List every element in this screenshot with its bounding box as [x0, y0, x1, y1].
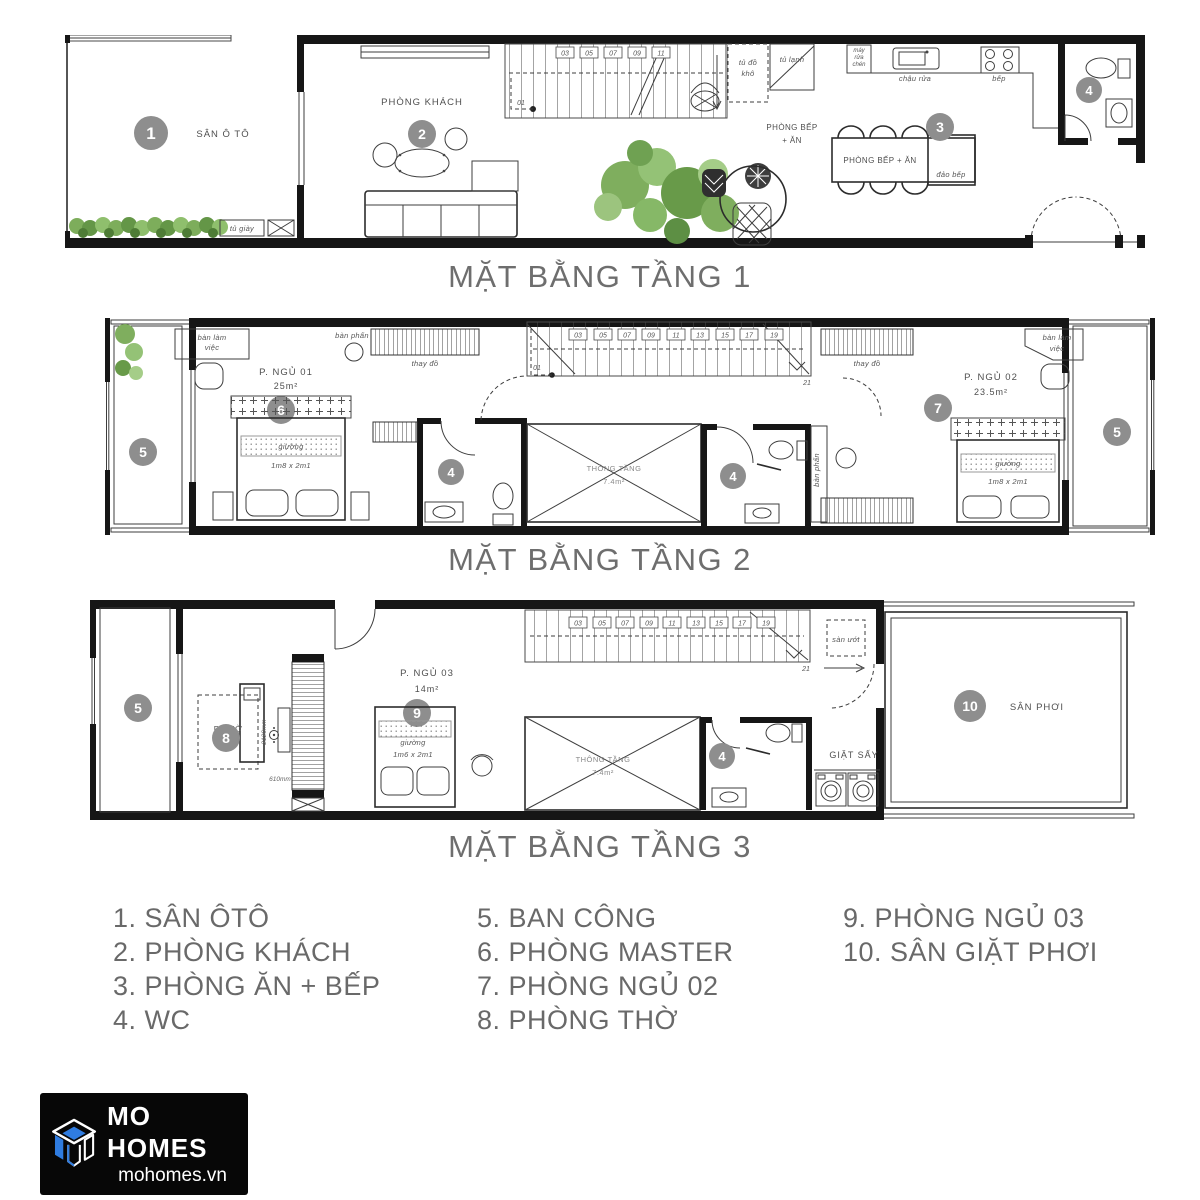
svg-text:7: 7 — [934, 400, 942, 416]
svg-text:1: 1 — [146, 124, 155, 143]
room-area-pngu01: 25m² — [274, 381, 299, 391]
svg-text:tủ đồ: tủ đồ — [739, 58, 757, 67]
svg-text:bếp: bếp — [992, 74, 1005, 83]
svg-text:việc: việc — [205, 343, 220, 352]
laundry-label: GIẶT SẤY — [829, 750, 878, 760]
floor3-title: MẶT BẰNG TẦNG 3 — [0, 829, 1200, 865]
svg-text:03: 03 — [561, 51, 569, 58]
marker-10: 10 — [954, 690, 986, 722]
svg-text:5: 5 — [134, 700, 142, 716]
svg-text:19: 19 — [770, 333, 778, 340]
marker-5-floor3: 5 — [124, 694, 152, 722]
svg-text:giường: giường — [995, 459, 1021, 468]
wc-left-floor2: 4 — [373, 418, 527, 526]
marker-8: 8 — [212, 724, 240, 752]
svg-text:07: 07 — [623, 333, 632, 340]
wc-floor1: 4 — [1058, 44, 1145, 145]
floor-plan-sheet: tủ giày 1 SÂN Ô TÔ PHÒNG KHÁCH 2 03 05 — [0, 0, 1200, 1200]
logo-text: MO HOMES mohomes.vn — [107, 1100, 238, 1188]
svg-text:8: 8 — [222, 730, 230, 746]
svg-text:bàn làm: bàn làm — [198, 333, 227, 342]
carport: tủ giày 1 SÂN Ô TÔ — [69, 116, 294, 238]
legend-column-2: 5. BAN CÔNG 6. PHÒNG MASTER 7. PHÒNG NGỦ… — [477, 901, 734, 1037]
svg-text:giường: giường — [400, 738, 426, 747]
wardrobe-label: thay đồ — [412, 359, 439, 368]
room-label-pngu02: P. NGỦ 02 — [964, 371, 1018, 383]
svg-text:21: 21 — [802, 380, 811, 387]
wet-floor-label: sàn ướt — [832, 635, 860, 644]
marker-4-right: 4 — [720, 463, 746, 489]
svg-text:09: 09 — [645, 621, 653, 628]
fridge: tủ lạnh — [770, 44, 814, 90]
svg-text:khô: khô — [742, 69, 755, 78]
dim-2120: 2120mm — [261, 719, 268, 746]
svg-text:chén: chén — [852, 62, 866, 68]
wc-sink — [1106, 99, 1132, 127]
svg-text:15: 15 — [715, 621, 723, 628]
floor2-title: MẶT BẰNG TẦNG 2 — [0, 542, 1200, 578]
drying-terrace: 10 SÂN PHƠI — [885, 612, 1127, 808]
svg-text:13: 13 — [696, 333, 704, 340]
master-bedroom: bàn làm việc bàn phấn thay đồ P. NGỦ 01 … — [175, 329, 479, 520]
legend-item: 5. BAN CÔNG — [477, 901, 734, 935]
legend-item: 6. PHÒNG MASTER — [477, 935, 734, 969]
legend-item: 3. PHÒNG ĂN + BẾP — [113, 969, 380, 1003]
kitchen: máy rửa chén chậu rửa bếp PHÒNG BẾP + ĂN… — [766, 45, 1058, 194]
bed-3: giường 1m6 x 2m1 — [375, 707, 455, 807]
legend-item: 9. PHÒNG NGỦ 03 — [843, 901, 1098, 935]
legend-column-3: 9. PHÒNG NGỦ 03 10. SÂN GIẶT PHƠI — [843, 901, 1098, 969]
marker-4-floor3: 4 — [709, 743, 735, 769]
svg-text:tủ lạnh: tủ lạnh — [780, 55, 805, 64]
logo: MO HOMES mohomes.vn — [40, 1093, 248, 1195]
bedroom3: P. NGỦ 03 14m² 9 giường 1m6 x 2m1 — [335, 600, 493, 807]
svg-text:1m6 x 2m1: 1m6 x 2m1 — [393, 750, 433, 759]
hedge-plants — [69, 217, 228, 238]
bed-master: giường 1m8 x 2m1 — [213, 396, 369, 520]
island-label: đảo bếp — [936, 170, 965, 179]
toilet — [1086, 58, 1130, 78]
marker-5-right: 5 — [1103, 418, 1131, 446]
bed-2: giường 1m8 x 2m1 — [951, 418, 1065, 522]
marker-4-left: 4 — [438, 459, 464, 485]
stove: bếp — [981, 47, 1019, 83]
floor-plan-2: 5 bàn làm việc bàn phấn thay đồ P. NGỦ 0… — [105, 318, 1155, 535]
kitchen-label-line2: + ĂN — [782, 136, 802, 145]
svg-text:11: 11 — [657, 51, 664, 58]
washer-1 — [816, 773, 846, 806]
svg-text:7.4m²: 7.4m² — [603, 477, 625, 486]
svg-text:chậu rửa: chậu rửa — [899, 74, 931, 83]
rear-double-door — [1025, 197, 1145, 248]
svg-text:11: 11 — [668, 621, 675, 628]
room-label-phong-khach: PHÒNG KHÁCH — [381, 97, 463, 108]
louver-screen — [292, 662, 324, 790]
balcony-right: 5 — [1073, 326, 1147, 526]
svg-text:01: 01 — [533, 365, 541, 372]
svg-text:03: 03 — [574, 621, 582, 628]
legend-item: 2. PHÒNG KHÁCH — [113, 935, 380, 969]
marker-2: 2 — [408, 120, 436, 148]
dry-pantry-cabinet: tủ đồ khô — [728, 44, 768, 102]
svg-text:giường: giường — [278, 442, 304, 451]
laundry: GIẶT SẤY — [814, 750, 880, 806]
svg-text:15: 15 — [721, 333, 729, 340]
floor-plan-3: 5 P. THỜ 8 2120mm 610mm P. NGỦ 03 14m² 9… — [90, 600, 1140, 820]
legend-item: 10. SÂN GIẶT PHƠI — [843, 935, 1098, 969]
svg-text:3: 3 — [936, 119, 944, 135]
svg-text:2: 2 — [418, 126, 426, 142]
legend-column-1: 1. SÂN ÔTÔ 2. PHÒNG KHÁCH 3. PHÒNG ĂN + … — [113, 901, 380, 1037]
svg-text:4: 4 — [729, 469, 737, 484]
room-label-san-phoi: SÂN PHƠI — [1010, 702, 1064, 713]
stair-start-label: 01 — [517, 100, 525, 107]
washer-2 — [848, 773, 878, 806]
svg-text:THÔNG TẦNG: THÔNG TẦNG — [587, 463, 642, 473]
svg-text:7.4m²: 7.4m² — [592, 768, 614, 777]
svg-text:05: 05 — [585, 51, 593, 58]
wet-area: sàn ướt — [824, 620, 874, 708]
garden-patio — [594, 140, 786, 245]
svg-text:rửa: rửa — [854, 54, 864, 61]
floor2-drawing: 5 bàn làm việc bàn phấn thay đồ P. NGỦ 0… — [105, 318, 1155, 535]
svg-text:1m8 x 2m1: 1m8 x 2m1 — [988, 477, 1028, 486]
svg-text:THÔNG TẦNG: THÔNG TẦNG — [576, 754, 631, 764]
legend-item: 7. PHÒNG NGỦ 02 — [477, 969, 734, 1003]
marker-4: 4 — [1076, 77, 1102, 103]
shaft-box — [268, 220, 294, 236]
legend-item: 1. SÂN ÔTÔ — [113, 901, 380, 935]
room-label-pngu01: P. NGỦ 01 — [259, 366, 313, 378]
svg-text:11: 11 — [672, 333, 679, 340]
shoe-cabinet-label: tủ giày — [230, 224, 255, 233]
kitchen-sink: chậu rửa — [893, 48, 939, 83]
svg-text:05: 05 — [598, 621, 606, 628]
svg-text:19: 19 — [762, 621, 770, 628]
void-floor2: THÔNG TẦNG 7.4m² — [527, 424, 701, 522]
bedroom2: thay đồ P. NGỦ 02 23.5m² 7 giường 1m8 x … — [821, 329, 1083, 523]
floor3-drawing: 5 P. THỜ 8 2120mm 610mm P. NGỦ 03 14m² 9… — [90, 600, 1140, 820]
room-area-pngu03: 14m² — [415, 684, 440, 694]
kitchen-label-line1: PHÒNG BẾP — [766, 122, 817, 132]
svg-text:bàn làm: bàn làm — [1043, 333, 1072, 342]
void-floor3: THÔNG TẦNG 7.4m² — [525, 717, 700, 810]
worship-room: P. THỜ 8 2120mm 610mm — [198, 654, 324, 811]
logo-cube-icon — [50, 1113, 98, 1175]
svg-text:03: 03 — [574, 333, 582, 340]
floor-plan-1: tủ giày 1 SÂN Ô TÔ PHÒNG KHÁCH 2 03 05 — [65, 35, 1145, 250]
stairs-floor3: 03 05 07 09 11 13 15 17 19 21 — [525, 610, 810, 673]
room-label-san-oto: SÂN Ô TÔ — [196, 129, 249, 140]
wardrobe-hatch — [371, 329, 479, 355]
balcony-left: 5 — [114, 324, 182, 524]
svg-text:bàn phấn: bàn phấn — [812, 453, 821, 487]
marker-1: 1 — [134, 116, 168, 150]
svg-text:4: 4 — [718, 749, 726, 764]
floor1-title: MẶT BẰNG TẦNG 1 — [0, 259, 1200, 295]
svg-text:17: 17 — [745, 333, 754, 340]
table-label: PHÒNG BẾP + ĂN — [843, 155, 916, 165]
svg-text:máy: máy — [853, 48, 865, 54]
dim-610: 610mm — [269, 776, 291, 783]
dining-table: PHÒNG BẾP + ĂN đảo bếp — [832, 126, 975, 194]
balcony-floor3: 5 — [100, 608, 170, 812]
legend-item: 8. PHÒNG THỜ — [477, 1003, 734, 1037]
svg-text:10: 10 — [962, 698, 978, 714]
svg-text:5: 5 — [1113, 424, 1121, 440]
svg-text:5: 5 — [139, 444, 147, 460]
wc-right-floor2: 4 — [701, 424, 811, 526]
logo-domain: mohomes.vn — [107, 1164, 238, 1188]
svg-text:thay đồ: thay đồ — [854, 359, 881, 368]
svg-text:1m8 x 2m1: 1m8 x 2m1 — [271, 461, 311, 470]
svg-text:17: 17 — [738, 621, 747, 628]
legend-item: 4. WC — [113, 1003, 380, 1037]
floor1-drawing: tủ giày 1 SÂN Ô TÔ PHÒNG KHÁCH 2 03 05 — [65, 35, 1145, 250]
svg-text:4: 4 — [1085, 83, 1093, 98]
vanity-label: bàn phấn — [335, 331, 369, 340]
living-room: PHÒNG KHÁCH 2 — [361, 46, 518, 237]
wc-floor3: 4 — [700, 717, 812, 810]
svg-text:4: 4 — [447, 465, 455, 480]
room-label-pngu03: P. NGỦ 03 — [400, 667, 454, 679]
svg-text:việc: việc — [1050, 344, 1065, 353]
svg-text:21: 21 — [801, 666, 810, 673]
marker-5: 5 — [129, 438, 157, 466]
room-area-pngu02: 23.5m² — [974, 387, 1008, 397]
svg-text:07: 07 — [621, 621, 630, 628]
svg-text:09: 09 — [633, 51, 641, 58]
svg-text:07: 07 — [609, 51, 618, 58]
logo-brand: MO HOMES — [107, 1100, 238, 1164]
svg-text:09: 09 — [647, 333, 655, 340]
svg-text:05: 05 — [599, 333, 607, 340]
marker-3: 3 — [926, 113, 954, 141]
marker-7: 7 — [924, 394, 952, 422]
svg-text:13: 13 — [692, 621, 700, 628]
